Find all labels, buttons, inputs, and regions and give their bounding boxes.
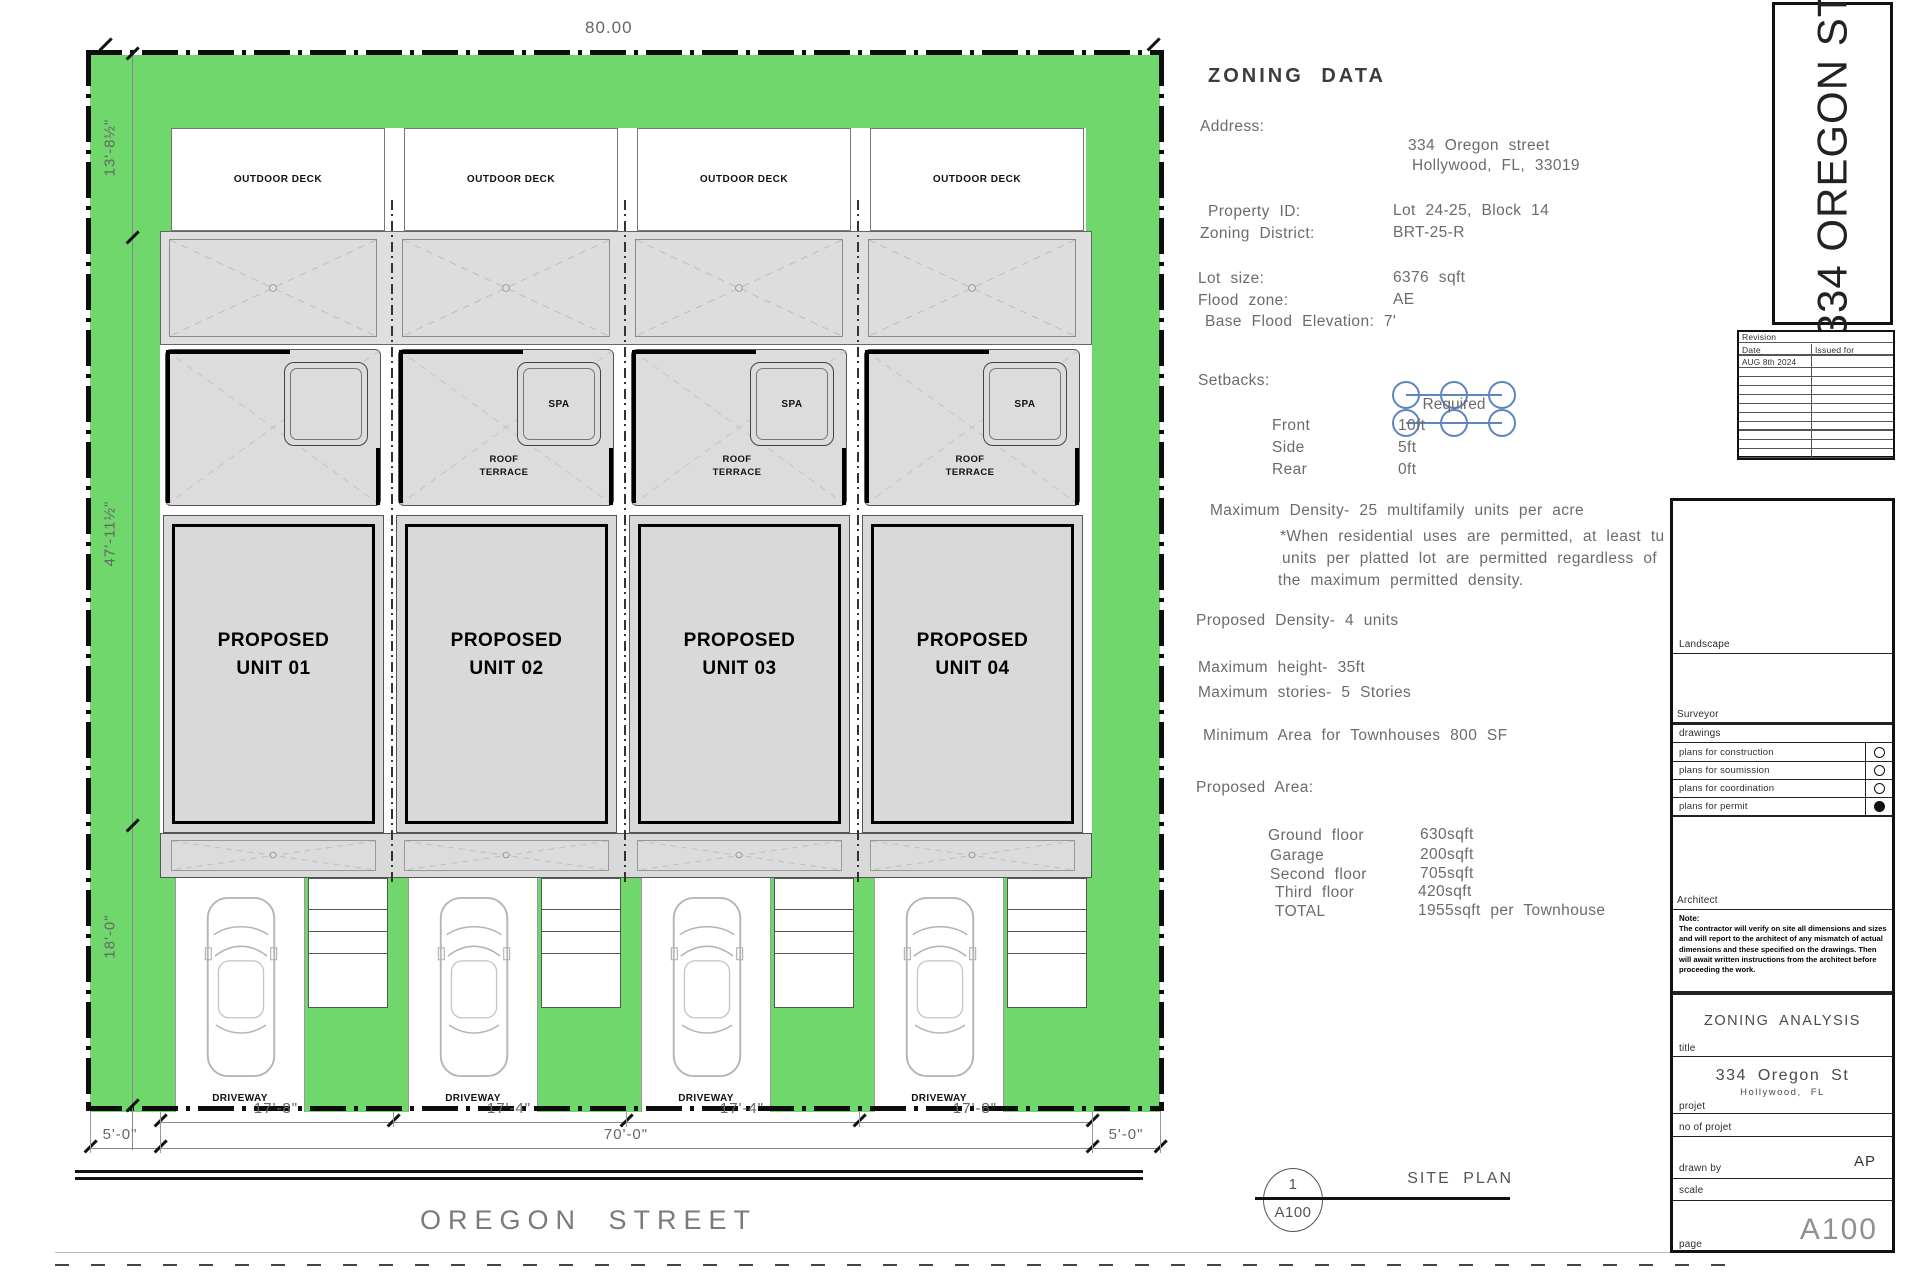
terrace-wall	[632, 350, 636, 503]
unit-column-02: OUTDOOR DECK SPA ROOF TERRACE PROPOSED U…	[396, 128, 618, 1112]
terrace-wall	[376, 448, 380, 505]
drawn-by-value: AP	[1854, 1153, 1876, 1170]
site-plan-sheet: OUTDOOR DECK PROPOSED UNIT 01	[0, 0, 1920, 1275]
no-of-projet-label: no of projet	[1679, 1122, 1731, 1133]
entry-porch	[870, 840, 1075, 871]
spa-label: SPA	[781, 399, 802, 410]
unit-column-04: OUTDOOR DECK SPA ROOF TERRACE PROPOSED U…	[862, 128, 1084, 1112]
titleblock-panel: Landscape Surveyor drawings plans for co…	[1670, 498, 1895, 1253]
roof-terrace: SPA ROOF TERRACE	[864, 349, 1080, 506]
roof-terrace	[165, 349, 381, 506]
divider	[1673, 1056, 1892, 1057]
terrace-wall	[842, 448, 846, 505]
party-wall-line	[391, 200, 393, 885]
divider	[1673, 779, 1892, 780]
property-line-west	[86, 50, 91, 1111]
terrace-wall	[865, 350, 869, 503]
deck-label: OUTDOOR DECK	[700, 174, 788, 185]
entry-porch	[637, 840, 842, 871]
zoning-title: ZONING DATA	[1208, 65, 1386, 88]
density-note-2: units per platted lot are permitted rega…	[1282, 550, 1657, 568]
terrace-wall	[166, 350, 290, 354]
title-label: title	[1679, 1043, 1696, 1054]
extension-line	[1160, 1111, 1161, 1153]
dim-unit3-width: 17'-4"	[682, 1100, 802, 1117]
divider	[1673, 1200, 1892, 1201]
max-height: Maximum height- 35ft	[1198, 659, 1365, 677]
entry-steps	[774, 878, 854, 1008]
outdoor-deck: OUTDOOR DECK	[171, 128, 385, 231]
divider	[1673, 991, 1892, 995]
dim-unit1-width: 17'-8"	[216, 1100, 336, 1117]
terrace-wall	[609, 448, 613, 505]
divider	[1673, 815, 1892, 817]
dim-side-setback-right: 5'-0"	[1088, 1126, 1164, 1143]
proposed-area-label: Proposed Area:	[1196, 779, 1313, 797]
terrace-wall	[399, 350, 523, 354]
driveway: DRIVEWAY	[408, 878, 538, 1112]
projet-label: projet	[1679, 1101, 1705, 1112]
area-garage-label: Garage	[1270, 847, 1324, 865]
drawings-label: drawings	[1679, 728, 1721, 739]
deck-label: OUTDOOR DECK	[467, 174, 555, 185]
area-second-label: Second floor	[1270, 866, 1367, 884]
divider	[1673, 722, 1892, 725]
spa: SPA	[750, 362, 834, 446]
plans-permit-radio	[1874, 801, 1885, 812]
outdoor-deck: OUTDOOR DECK	[404, 128, 618, 231]
spa-label: SPA	[548, 399, 569, 410]
dim-line-frontage	[90, 1148, 1160, 1149]
note-text: The contractor will verify on site all d…	[1679, 924, 1887, 975]
analysis-title: ZONING ANALYSIS	[1673, 1013, 1892, 1029]
callout-title-line	[1255, 1197, 1510, 1200]
terrace-wall	[865, 350, 989, 354]
proposed-unit-02: PROPOSED UNIT 02	[396, 515, 617, 833]
density-note-1: *When residential uses are permitted, at…	[1280, 528, 1665, 546]
extension-line	[90, 1111, 91, 1153]
roof-panel	[635, 239, 843, 337]
street-edge-line	[75, 1170, 1143, 1173]
divider	[1673, 1178, 1892, 1179]
architect-label: Architect	[1677, 895, 1718, 906]
divider	[1673, 761, 1892, 762]
roof-panel	[402, 239, 610, 337]
setback-front-value: 10ft	[1398, 417, 1425, 435]
entry-steps	[1007, 878, 1087, 1008]
divider	[1673, 797, 1892, 798]
zoning-district-value: BRT-25-R	[1393, 224, 1465, 242]
density-note-3: the maximum permitted density.	[1278, 572, 1524, 590]
landscape-label: Landscape	[1679, 639, 1730, 650]
roof-terrace-label: ROOF TERRACE	[434, 454, 574, 480]
terrace-wall	[632, 350, 756, 354]
roof-panel	[169, 239, 377, 337]
spa	[284, 362, 368, 446]
project-subtitle: Hollywood, FL	[1673, 1087, 1892, 1098]
divider	[1673, 1113, 1892, 1114]
base-flood-elevation: Base Flood Elevation: 7'	[1205, 313, 1396, 331]
max-stories: Maximum stories- 5 Stories	[1198, 684, 1411, 702]
divider	[1673, 1136, 1892, 1137]
divider	[1673, 909, 1892, 910]
radio-column-divider	[1865, 742, 1866, 817]
plans-permit-label: plans for permit	[1679, 801, 1748, 812]
divider	[1673, 742, 1892, 743]
roof-terrace: SPA ROOF TERRACE	[631, 349, 847, 506]
flood-zone-label: Flood zone:	[1198, 292, 1288, 310]
dim-front-yard: 18'-0"	[102, 899, 119, 975]
zoning-data-block: ZONING DATA Address: 334 Oregon street H…	[1190, 55, 1668, 975]
address-label: Address:	[1200, 118, 1264, 136]
roof-terrace-label: ROOF TERRACE	[900, 454, 1040, 480]
entry-porch	[171, 840, 376, 871]
min-area: Minimum Area for Townhouses 800 SF	[1203, 727, 1508, 745]
dim-side-setback-left: 5'-0"	[82, 1126, 158, 1143]
area-garage-value: 200sqft	[1420, 846, 1474, 864]
deck-label: OUTDOOR DECK	[933, 174, 1021, 185]
area-ground-label: Ground floor	[1268, 827, 1364, 845]
deck-label: OUTDOOR DECK	[234, 174, 322, 185]
unit-label: PROPOSED UNIT 04	[874, 627, 1071, 682]
roof-terrace: SPA ROOF TERRACE	[398, 349, 614, 506]
drawing-title: SITE PLAN	[1398, 1170, 1513, 1188]
project-name-vertical: 334 OREGON ST	[1809, 0, 1857, 337]
area-ground-value: 630sqft	[1420, 826, 1474, 844]
car-icon	[657, 892, 757, 1082]
dim-building-depth: 47'-11½"	[102, 476, 119, 592]
max-density: Maximum Density- 25 multifamily units pe…	[1210, 502, 1584, 520]
car-icon	[424, 892, 524, 1082]
dim-line-left	[132, 55, 133, 1150]
party-wall-line	[857, 200, 859, 885]
roof-terrace-label: ROOF TERRACE	[667, 454, 807, 480]
flood-zone-value: AE	[1393, 291, 1414, 309]
area-third-value: 420sqft	[1418, 883, 1472, 901]
unit-column-03: OUTDOOR DECK SPA ROOF TERRACE PROPOSED U…	[629, 128, 851, 1112]
car-icon	[890, 892, 990, 1082]
extension-line	[160, 1111, 161, 1153]
outdoor-deck: OUTDOOR DECK	[870, 128, 1084, 231]
extension-line	[393, 1111, 394, 1127]
unit-label: PROPOSED UNIT 02	[408, 627, 605, 682]
page-label: page	[1679, 1239, 1702, 1250]
revision-table: Revision Date Issued for AUG 8th 2024	[1737, 330, 1895, 460]
terrace-wall	[399, 350, 403, 503]
street-edge-line	[75, 1177, 1143, 1180]
dim-rear-yard: 13'-8½"	[102, 100, 119, 196]
spa: SPA	[517, 362, 601, 446]
scale-label: scale	[1679, 1185, 1703, 1196]
setback-front-label: Front	[1272, 417, 1310, 435]
unit-label: PROPOSED UNIT 03	[641, 627, 838, 682]
plans-coordination-radio	[1874, 783, 1885, 794]
plans-coordination-label: plans for coordination	[1679, 783, 1774, 794]
proposed-unit-04: PROPOSED UNIT 04	[862, 515, 1083, 833]
plans-construction-label: plans for construction	[1679, 747, 1774, 758]
party-wall-line	[624, 200, 626, 885]
setbacks-label: Setbacks:	[1198, 372, 1270, 390]
property-id-label: Property ID:	[1208, 203, 1301, 221]
driveway: DRIVEWAY	[175, 878, 305, 1112]
property-line-north	[86, 50, 1164, 55]
lot-size-value: 6376 sqft	[1393, 269, 1465, 287]
area-second-value: 705sqft	[1420, 865, 1474, 883]
dim-unit2-width: 17'-4"	[449, 1100, 569, 1117]
revision-column-divider	[1811, 344, 1812, 458]
project-name-panel: 334 OREGON ST	[1772, 2, 1893, 325]
setback-rear-label: Rear	[1272, 461, 1307, 479]
driveway: DRIVEWAY	[641, 878, 771, 1112]
sheet-number: A100	[1800, 1213, 1878, 1247]
terrace-wall	[166, 350, 170, 503]
area-third-label: Third floor	[1275, 884, 1354, 902]
drawn-by-label: drawn by	[1679, 1163, 1721, 1174]
sheet-dash-strip	[55, 1264, 1745, 1266]
spa-label: SPA	[1014, 399, 1035, 410]
area-total-label: TOTAL	[1275, 903, 1326, 921]
proposed-unit-01: PROPOSED UNIT 01	[163, 515, 384, 833]
roof-panel	[868, 239, 1076, 337]
setback-rear-value: 0ft	[1398, 461, 1416, 479]
plans-soumission-label: plans for soumission	[1679, 765, 1770, 776]
car-icon	[191, 892, 291, 1082]
address-line2: Hollywood, FL, 33019	[1412, 157, 1580, 175]
project-title: 334 Oregon St	[1673, 1067, 1892, 1085]
plans-construction-radio	[1874, 747, 1885, 758]
address-line1: 334 Oregon street	[1408, 137, 1550, 155]
spa: SPA	[983, 362, 1067, 446]
plans-soumission-radio	[1874, 765, 1885, 776]
entry-steps	[308, 878, 388, 1008]
entry-porch	[404, 840, 609, 871]
callout-number: 1	[1263, 1176, 1323, 1193]
terrace-wall	[1075, 448, 1079, 505]
driveway: DRIVEWAY	[874, 878, 1004, 1112]
entry-steps	[541, 878, 621, 1008]
area-total-value: 1955sqft per Townhouse	[1418, 902, 1605, 920]
setback-side-label: Side	[1272, 439, 1305, 457]
zoning-district-label: Zoning District:	[1200, 225, 1315, 243]
unit-label: PROPOSED UNIT 01	[175, 627, 372, 682]
unit-column-01: OUTDOOR DECK PROPOSED UNIT 01	[163, 128, 385, 1112]
divider	[1673, 653, 1892, 654]
proposed-density: Proposed Density- 4 units	[1196, 612, 1398, 630]
outdoor-deck: OUTDOOR DECK	[637, 128, 851, 231]
extension-line	[859, 1111, 860, 1127]
lot-size-label: Lot size:	[1198, 270, 1264, 288]
extension-line	[626, 1111, 627, 1127]
property-id-value: Lot 24-25, Block 14	[1393, 202, 1549, 220]
dim-frontage: 70'-0"	[566, 1126, 686, 1143]
setback-side-value: 5ft	[1398, 439, 1416, 457]
property-line-east	[1159, 50, 1164, 1111]
sheet-border-line	[55, 1252, 1705, 1253]
proposed-unit-03: PROPOSED UNIT 03	[629, 515, 850, 833]
surveyor-label: Surveyor	[1677, 709, 1719, 720]
extension-line	[1092, 1111, 1093, 1153]
street-name: OREGON STREET	[420, 1205, 757, 1236]
callout-sheet: A100	[1263, 1204, 1323, 1221]
required-label: Required	[1388, 396, 1520, 414]
dim-unit4-width: 17'-8"	[915, 1100, 1035, 1117]
dim-lot-width: 80.00	[585, 18, 633, 38]
